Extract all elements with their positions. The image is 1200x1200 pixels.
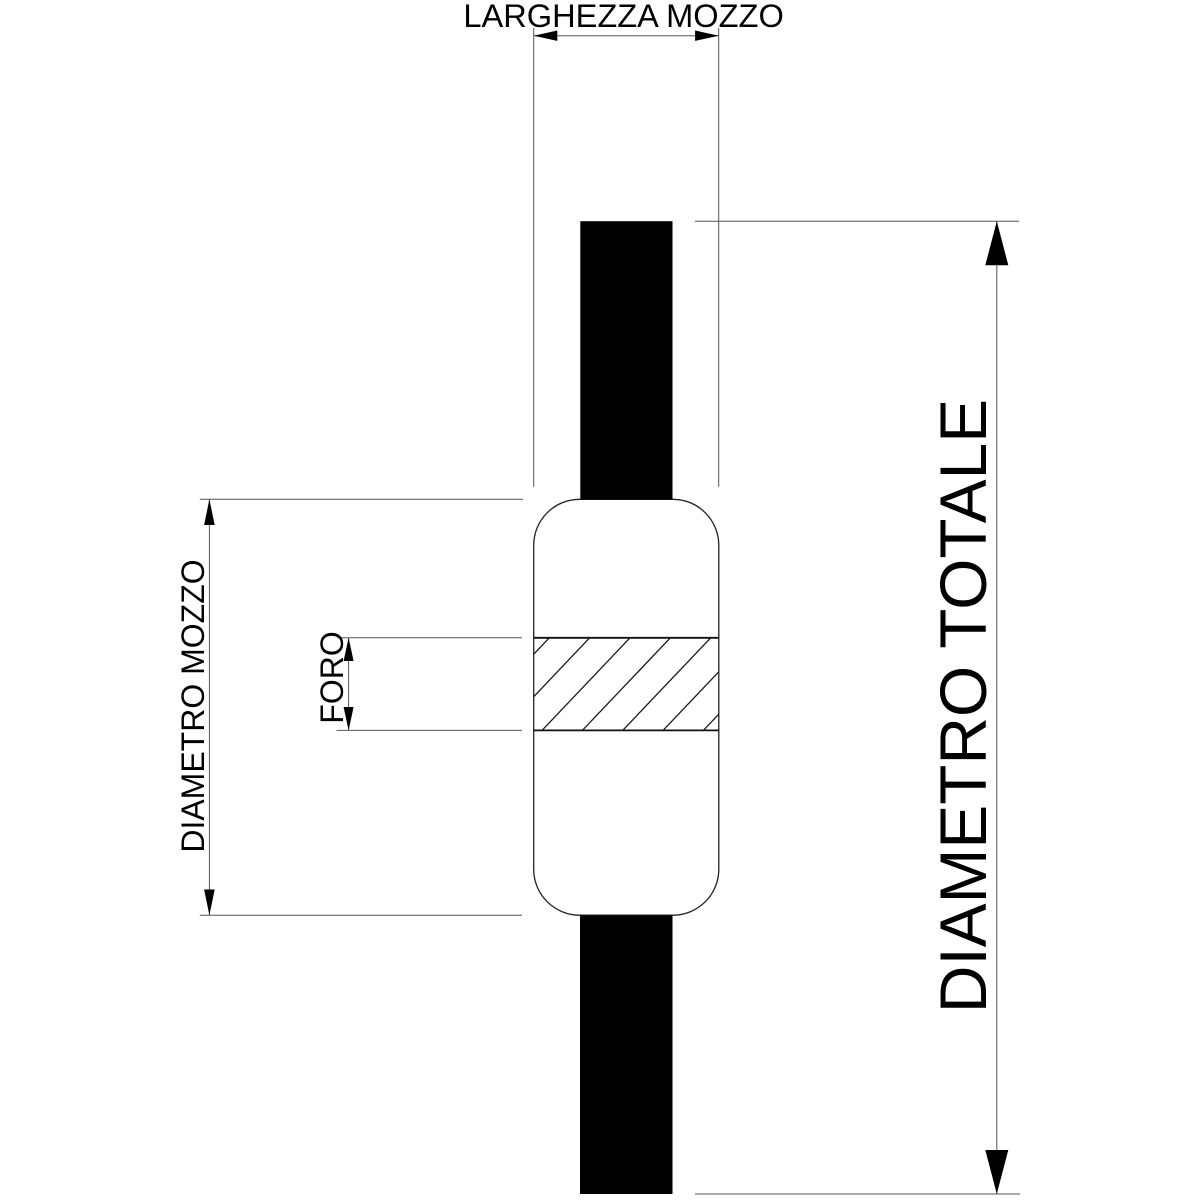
svg-text:FORO: FORO	[314, 631, 350, 723]
svg-text:LARGHEZZA MOZZO: LARGHEZZA MOZZO	[463, 0, 783, 34]
svg-text:DIAMETRO MOZZO: DIAMETRO MOZZO	[175, 559, 211, 852]
svg-text:DIAMETRO TOTALE: DIAMETRO TOTALE	[926, 399, 1000, 1013]
